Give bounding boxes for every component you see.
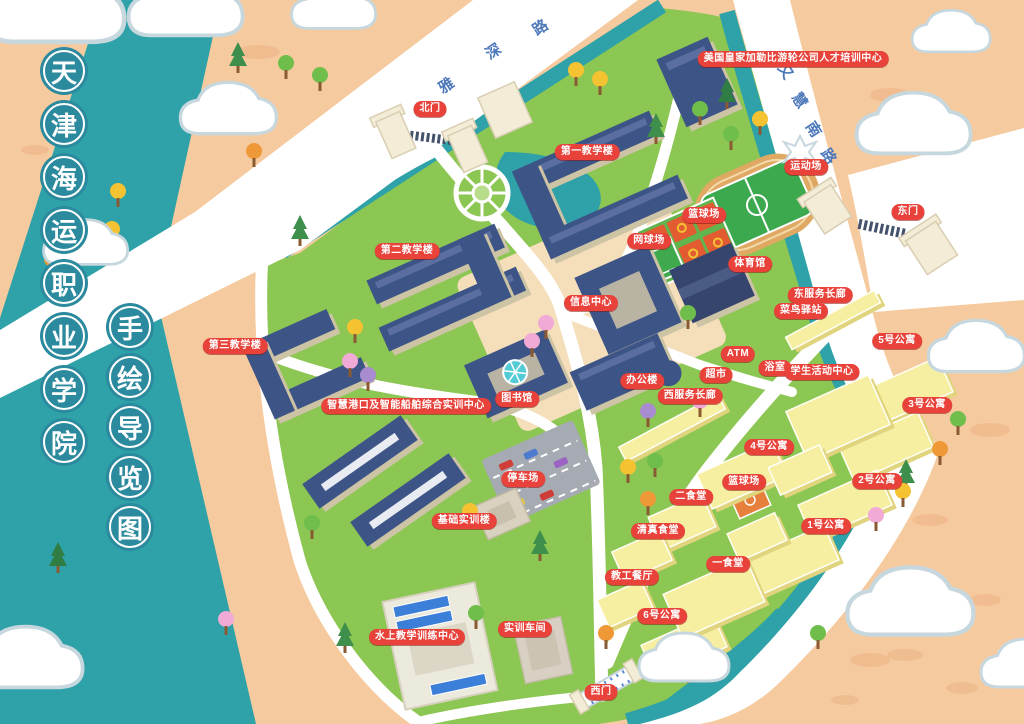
roundabout-garden	[456, 167, 508, 219]
map-illustration	[0, 0, 1024, 724]
campus-map-poster: 天津海运职业学院 手绘导览图	[0, 0, 1024, 724]
